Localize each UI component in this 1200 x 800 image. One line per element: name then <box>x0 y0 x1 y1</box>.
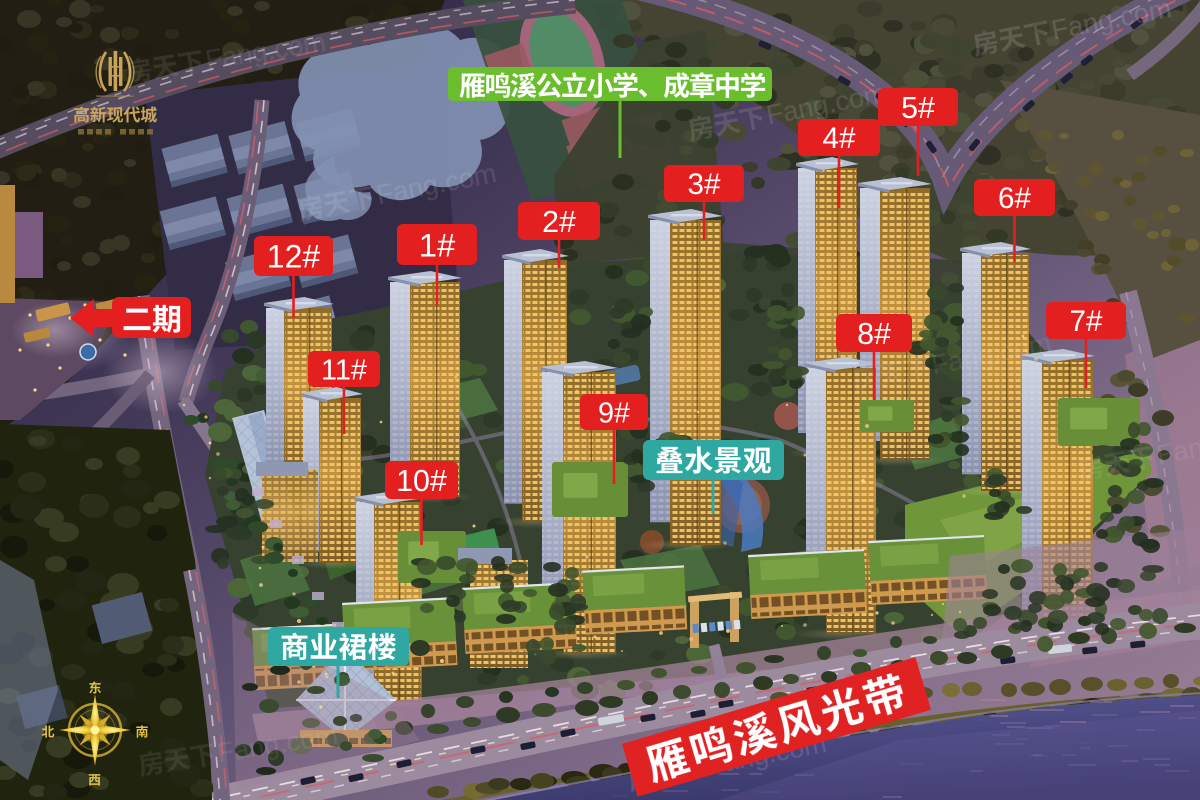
svg-text:7#: 7# <box>1070 305 1103 338</box>
svg-text:5#: 5# <box>901 91 935 125</box>
svg-text:10#: 10# <box>396 464 447 498</box>
svg-text:3#: 3# <box>688 168 721 201</box>
svg-text:1#: 1# <box>419 226 456 263</box>
svg-text:4#: 4# <box>823 122 856 155</box>
svg-text:8#: 8# <box>857 317 891 351</box>
svg-text:6#: 6# <box>998 182 1031 215</box>
svg-text:12#: 12# <box>267 239 321 275</box>
svg-text:9#: 9# <box>598 397 630 429</box>
svg-text:11#: 11# <box>321 354 367 386</box>
svg-text:2#: 2# <box>542 205 576 239</box>
